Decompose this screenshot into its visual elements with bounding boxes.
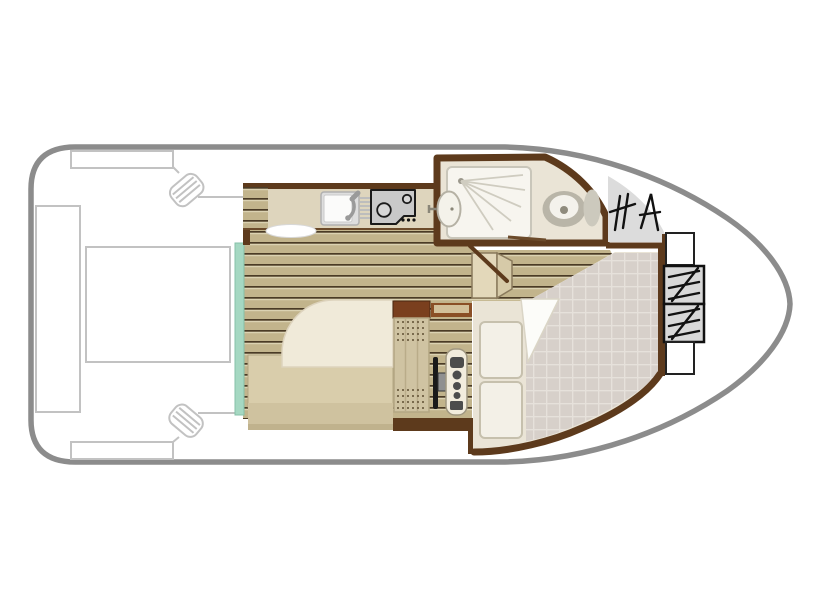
helm-cabinet [393,301,430,318]
galley [243,187,434,238]
pillow-lower [480,382,522,438]
fold-table [266,225,316,238]
bed-frame-edge [248,424,393,430]
bed-foot [248,403,393,424]
burner-large [377,203,391,217]
side-cabinet [243,187,268,229]
dashboard [446,349,467,415]
bow-locker-upper [666,233,694,265]
bow-locker-lower [666,342,694,374]
helm-seat [394,318,429,412]
helm-wall-bottom [393,418,472,431]
boat-floor-plan [0,0,816,612]
stove [371,190,416,224]
bow-step-box-upper [664,266,704,304]
bow-step-box-lower [664,304,704,342]
pillow-upper [480,322,522,378]
toilet-tank [584,190,601,227]
stove-knobs [401,218,415,221]
burner-small [403,195,411,203]
floor-plan-drawing [0,0,816,612]
toilet [543,190,601,228]
sink [321,192,359,225]
entry-step-teal [235,243,244,415]
helm-shelf-inlay [434,305,469,313]
